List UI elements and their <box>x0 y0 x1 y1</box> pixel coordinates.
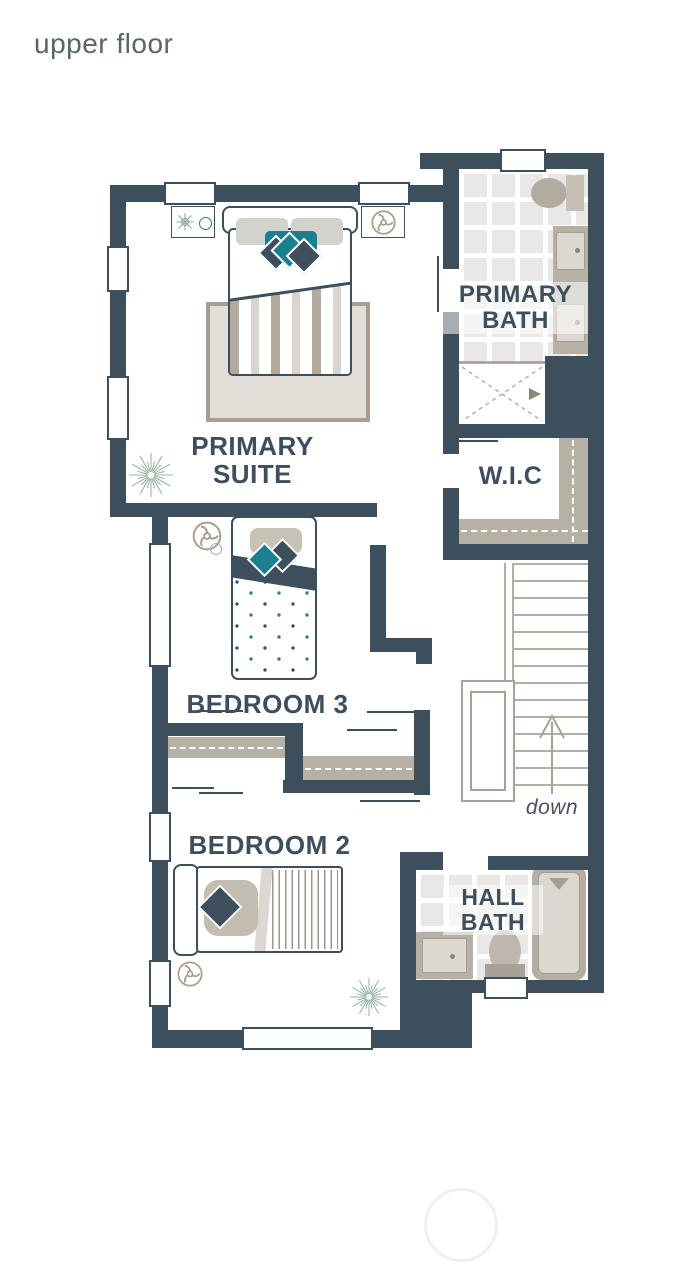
room-label-wic: W.I.C <box>468 463 553 490</box>
down-arrow-icon <box>536 702 568 796</box>
wall-segment <box>110 185 126 517</box>
nightstand-right <box>361 206 405 238</box>
window <box>500 149 546 172</box>
toilet-bowl <box>531 178 567 208</box>
plant-icon <box>174 211 196 233</box>
wall-segment <box>443 544 588 560</box>
toilet-tank <box>566 175 584 211</box>
wall-segment <box>443 424 588 438</box>
wall-segment <box>370 638 432 652</box>
window <box>149 543 171 667</box>
door-swing-line <box>199 792 243 794</box>
door-swing-line <box>437 256 439 312</box>
wall-segment <box>545 356 588 426</box>
vanity-sink <box>556 232 585 270</box>
wall-segment <box>416 852 443 870</box>
window <box>242 1027 373 1050</box>
wall-segment <box>527 980 604 993</box>
room-label-line: SUITE <box>155 460 350 488</box>
wall-segment <box>285 723 303 783</box>
window <box>107 376 129 440</box>
room-label-primary-suite: PRIMARY SUITE <box>155 432 350 488</box>
room-label-bedroom3: BEDROOM 3 <box>160 690 375 718</box>
stair-railing-inner <box>470 691 506 791</box>
door-swing-line <box>347 729 397 731</box>
wall-segment <box>488 856 604 870</box>
vanity-sink <box>422 938 467 973</box>
room-label-hall-bath: HALL BATH <box>443 885 543 935</box>
decor-fan-icon <box>370 209 397 236</box>
wall-segment <box>443 169 459 269</box>
door-swing-line <box>452 440 498 442</box>
fan-pull-icon <box>210 543 222 555</box>
bedroom3-bed <box>231 516 317 680</box>
sink-drain-dot <box>575 248 580 253</box>
bathtub-faucet-icon <box>549 878 569 890</box>
wall-segment <box>110 503 377 517</box>
floor-plan-page: { "header": { "title": "upper floor" }, … <box>0 0 700 1270</box>
wall-segment <box>162 723 303 736</box>
closet-rod-dashed-line <box>305 768 412 770</box>
room-label-line: PRIMARY <box>155 432 350 460</box>
lamp-icon <box>199 217 212 230</box>
room-label-line: HALL <box>443 885 543 910</box>
room-label-line: BATH <box>443 910 543 935</box>
wall-segment <box>370 545 386 652</box>
shower <box>459 361 545 425</box>
room-label-line: PRIMARY <box>443 282 588 308</box>
window <box>107 246 129 292</box>
nightstand-left <box>171 206 215 238</box>
wall-segment <box>416 652 432 664</box>
door-opening <box>484 977 528 999</box>
sink-drain-dot <box>450 954 455 959</box>
watermark-circle <box>424 1188 498 1262</box>
room-label-primary-bath: PRIMARY BATH <box>443 282 588 334</box>
wall-segment <box>152 1030 244 1048</box>
bedroom2-bed-duvet <box>272 870 338 949</box>
window <box>149 960 171 1007</box>
closet-rod-dashed-line <box>170 747 283 749</box>
door-swing-line <box>360 800 420 802</box>
door-swing-line <box>172 787 214 789</box>
wic-rod-dashed-line <box>461 530 588 532</box>
wall-segment <box>416 980 485 993</box>
wic-rod-dashed-line <box>572 440 574 542</box>
wall-segment <box>400 852 416 993</box>
ceiling-fan-icon <box>176 960 204 988</box>
stairs-direction-label: down <box>506 797 598 820</box>
window <box>164 182 216 205</box>
door-swing-line <box>367 711 422 713</box>
starburst-plant-icon <box>349 977 389 1017</box>
wall-segment <box>400 993 472 1048</box>
window <box>358 182 410 205</box>
room-label-line: BATH <box>443 308 588 334</box>
room-label-bedroom2: BEDROOM 2 <box>162 831 377 859</box>
wall-segment <box>283 780 430 793</box>
bedroom3-bed-duvet <box>235 580 313 676</box>
page-title: upper floor <box>34 28 173 60</box>
